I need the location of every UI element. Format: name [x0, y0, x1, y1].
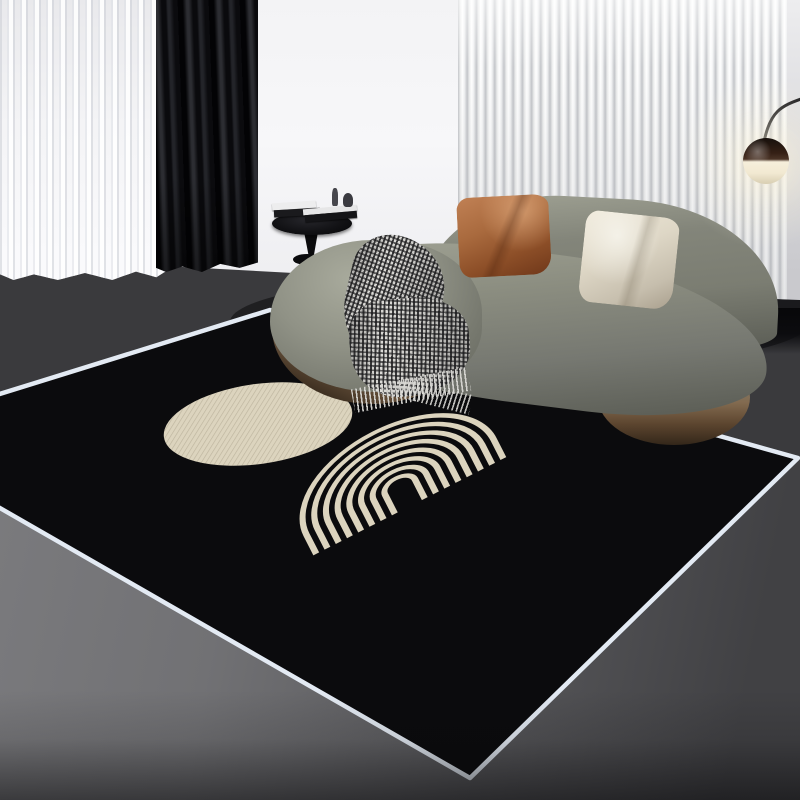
black-curtain [156, 0, 258, 272]
figurine [332, 188, 338, 206]
floor-vignette [0, 690, 800, 800]
globe-lamp [743, 138, 789, 184]
cream-pillow [577, 209, 680, 310]
sheer-curtain [0, 0, 170, 280]
figurine-2 [343, 193, 353, 207]
orange-leather-pillow [456, 194, 552, 279]
living-room-photo [0, 0, 800, 800]
